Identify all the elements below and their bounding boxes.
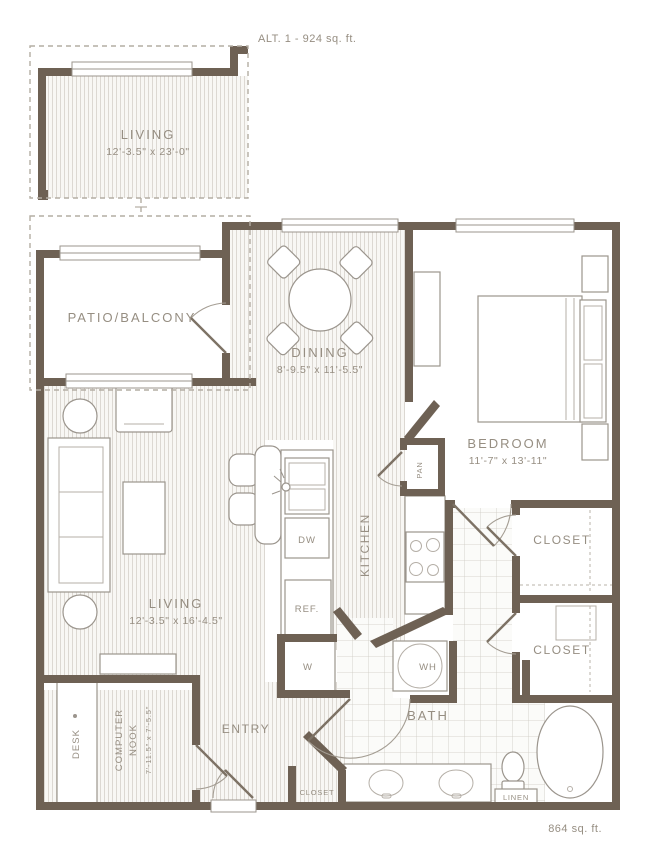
nook-label-line2: NOOK	[128, 724, 139, 756]
faucet-icon	[282, 483, 290, 491]
floor-plan-svg: ALT. 1 - 924 sq. ft. LIVING 12'-3.5" x 2…	[0, 0, 650, 850]
bedroom-furniture	[414, 256, 608, 460]
linen-label: LINEN	[503, 793, 529, 802]
coffee-table	[123, 482, 165, 554]
total-area-label: 864 sq. ft.	[548, 823, 602, 835]
alt-plan-label: ALT. 1 - 924 sq. ft.	[258, 33, 356, 45]
side-table	[63, 399, 97, 433]
closet2-label: CLOSET	[533, 643, 591, 657]
refrigerator-label: REF.	[295, 604, 320, 615]
toilet	[502, 752, 524, 782]
kitchen-sink	[285, 458, 329, 514]
kitchen-island	[255, 446, 281, 544]
console-table	[100, 654, 176, 674]
dresser	[414, 272, 440, 366]
pantry-label: PAN	[415, 461, 424, 478]
entry-label: ENTRY	[222, 722, 270, 736]
dishwasher-label: DW	[298, 535, 316, 546]
nightstand	[582, 256, 608, 292]
nook-label-line1: COMPUTER	[114, 709, 125, 771]
bedroom-label: BEDROOM	[467, 436, 548, 451]
water-heater-label: WH	[419, 662, 437, 673]
closet-shelf	[556, 606, 596, 640]
washer-label: W	[303, 662, 313, 673]
floor-plan-canvas: ALT. 1 - 924 sq. ft. LIVING 12'-3.5" x 2…	[0, 0, 650, 850]
bath-label: BATH	[407, 708, 449, 723]
bathtub	[537, 706, 603, 798]
dining-label: DINING	[291, 345, 349, 360]
armchair	[116, 384, 172, 432]
kitchen-label: KITCHEN	[358, 513, 372, 577]
bedroom-dims: 11'-7" x 13'-11"	[469, 455, 547, 467]
dining-dims: 8'-9.5" x 11'-5.5"	[277, 364, 363, 376]
entry-threshold	[211, 800, 256, 812]
desk-knob-icon	[73, 714, 77, 718]
nightstand	[582, 424, 608, 460]
closet1-label: CLOSET	[533, 533, 591, 547]
patio-label: PATIO/BALCONY	[68, 310, 197, 325]
living-label: LIVING	[149, 596, 204, 611]
alt-living-dims: 12'-3.5" x 23'-0"	[106, 146, 190, 158]
living-dims: 12'-3.5" x 16'-4.5"	[129, 615, 223, 627]
dining-table	[289, 269, 351, 331]
desk-label: DESK	[71, 729, 82, 759]
alt-living-label: LIVING	[121, 127, 176, 142]
side-table	[63, 595, 97, 629]
patio-outline	[30, 216, 250, 390]
nook-dims: 7'-11.5" x 7'-5.5"	[144, 706, 153, 774]
sofa	[48, 438, 110, 592]
entry-closet-label: CLOSET	[300, 788, 335, 797]
vanity	[344, 764, 491, 802]
